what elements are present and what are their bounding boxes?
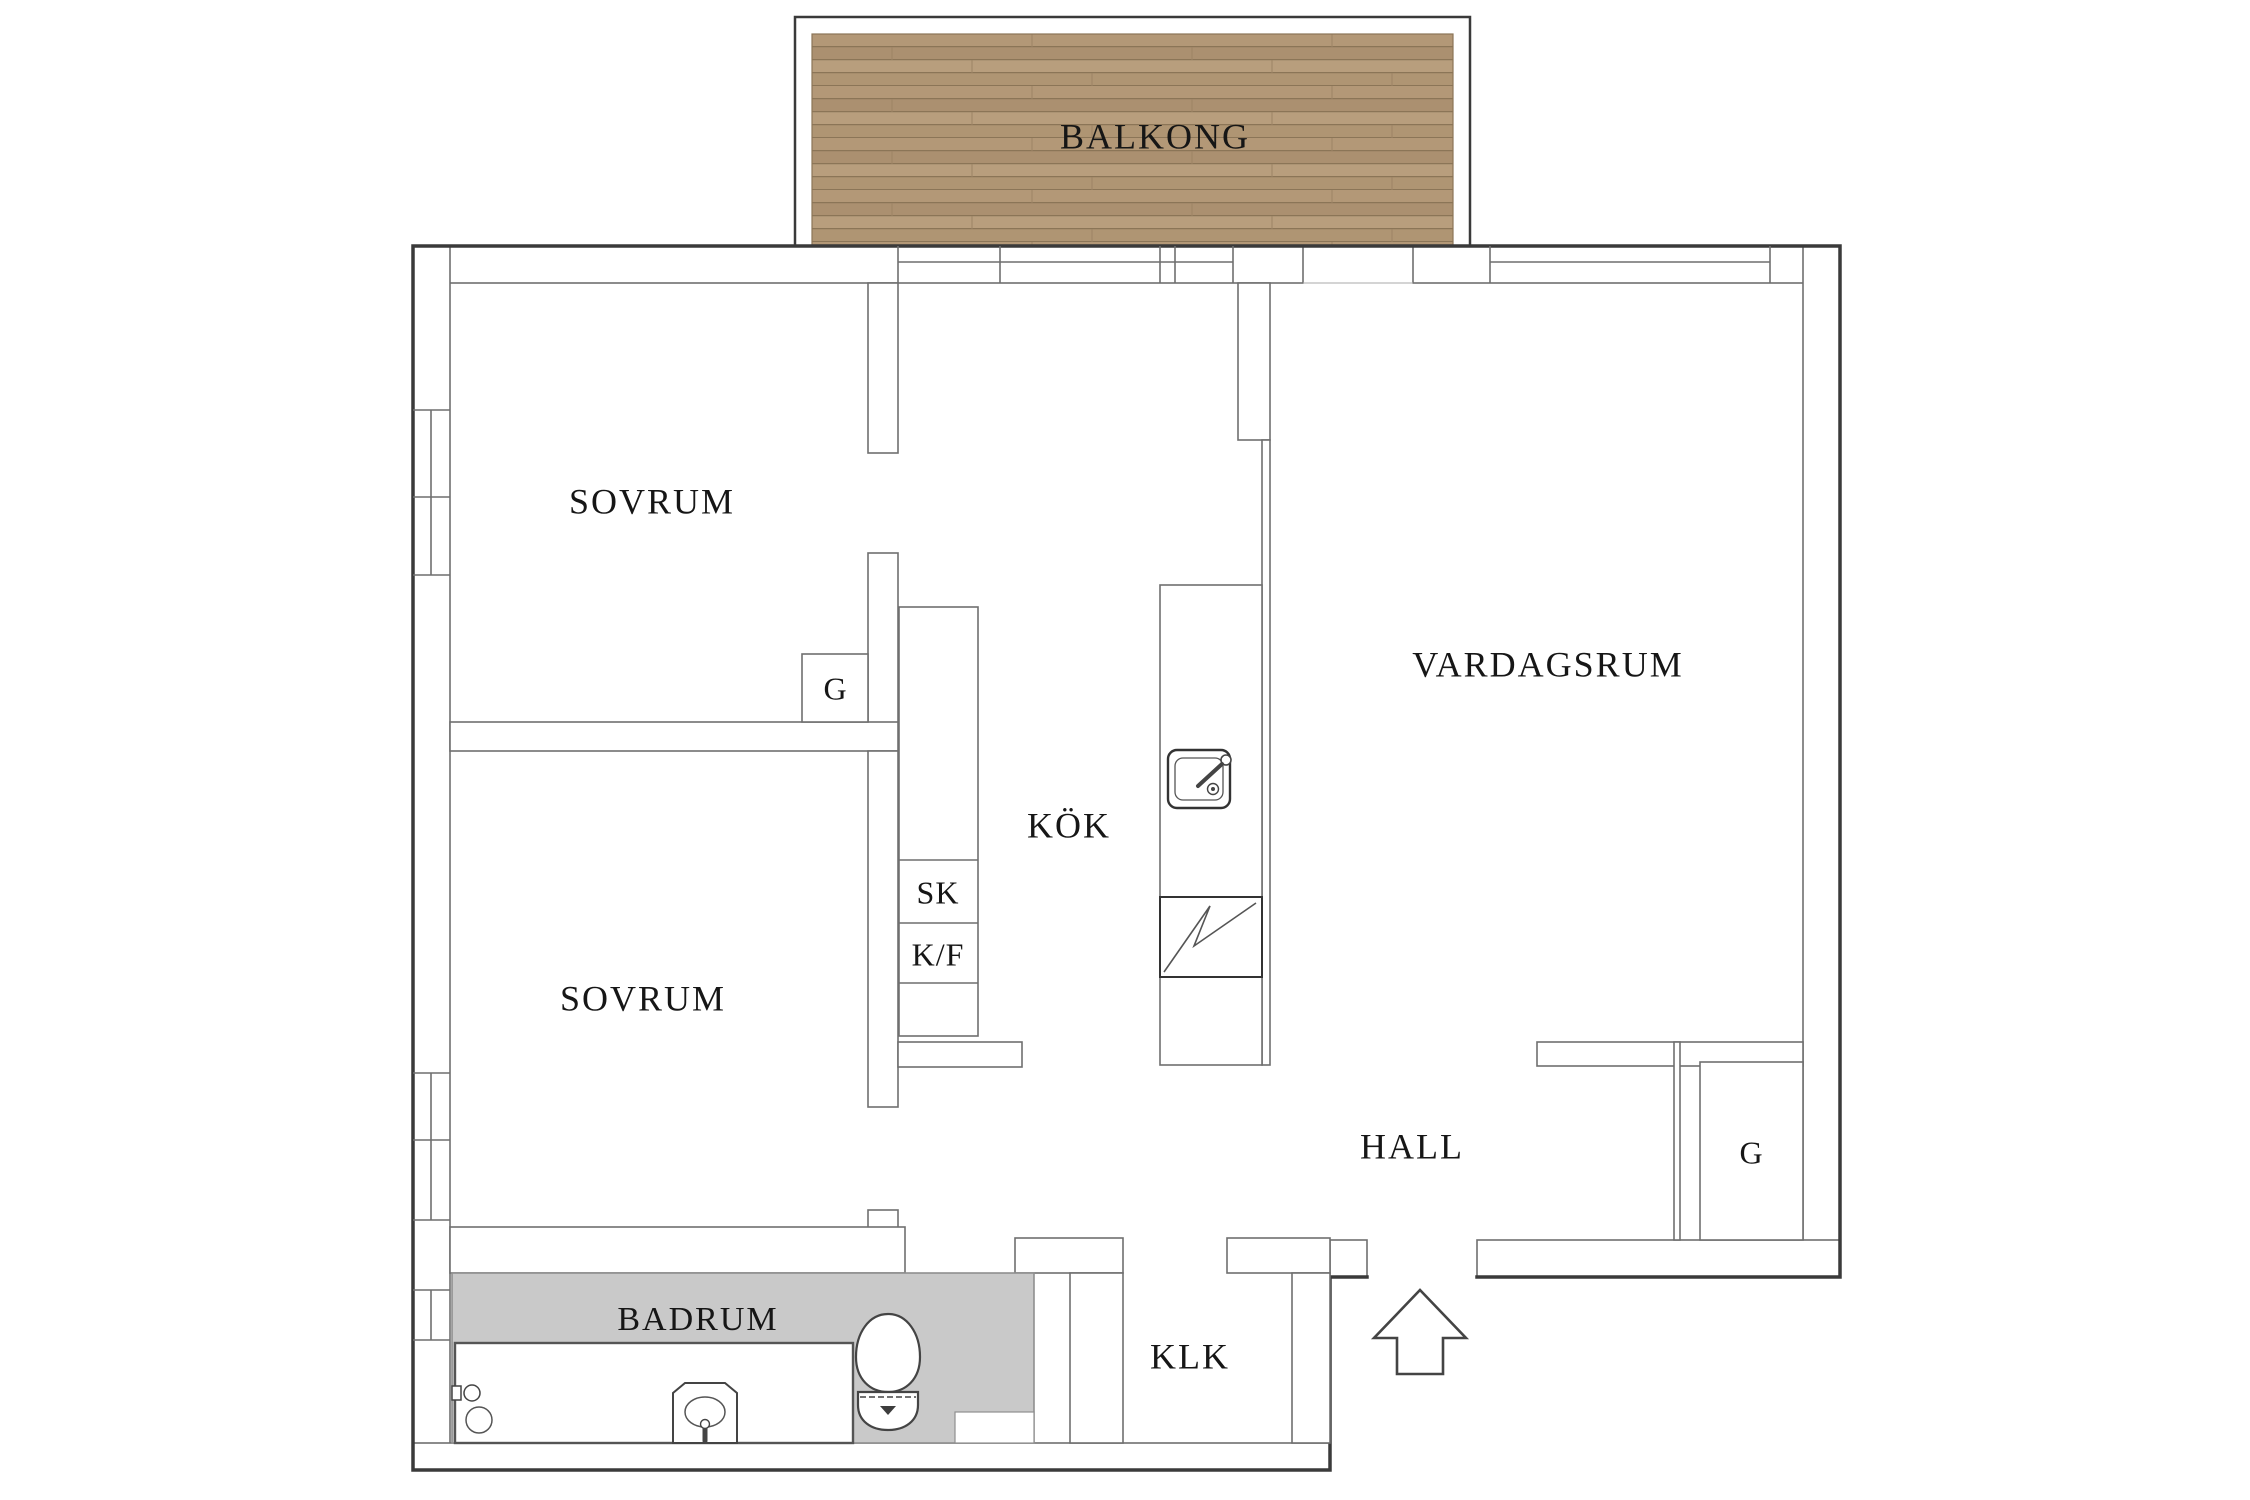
storage [802,607,1803,1240]
label-g-bedroom: G [823,670,846,706]
label-badrum: BADRUM [617,1301,778,1338]
entry-arrow [1374,1290,1466,1374]
label-g-hall: G [1739,1134,1762,1170]
label-balkong: BALKONG [1060,116,1250,156]
windows [413,246,1770,1340]
toilet [856,1314,920,1430]
label-klk: KLK [1150,1336,1230,1376]
bathroom [452,1273,1034,1443]
label-sovrum-2: SOVRUM [560,978,726,1018]
label-kok: KÖK [1027,805,1111,845]
kitchen-sink [1168,750,1231,808]
label-hall: HALL [1360,1126,1464,1166]
kitchen-counter [1160,585,1262,1065]
floor-plan-drawing: BALKONGSOVRUMSOVRUMVARDAGSRUMKÖKHALLKLKB… [0,0,2250,1500]
bathtub [452,1343,853,1443]
floor-plan: BALKONGSOVRUMSOVRUMVARDAGSRUMKÖKHALLKLKB… [0,0,2250,1500]
stove [1160,897,1262,977]
washbasin [673,1383,737,1443]
bathroom-step [955,1412,1034,1443]
label-kf: K/F [912,936,965,972]
label-sk: SK [917,874,960,910]
label-vardagsrum: VARDAGSRUM [1412,644,1683,684]
label-sovrum-1: SOVRUM [569,481,735,521]
